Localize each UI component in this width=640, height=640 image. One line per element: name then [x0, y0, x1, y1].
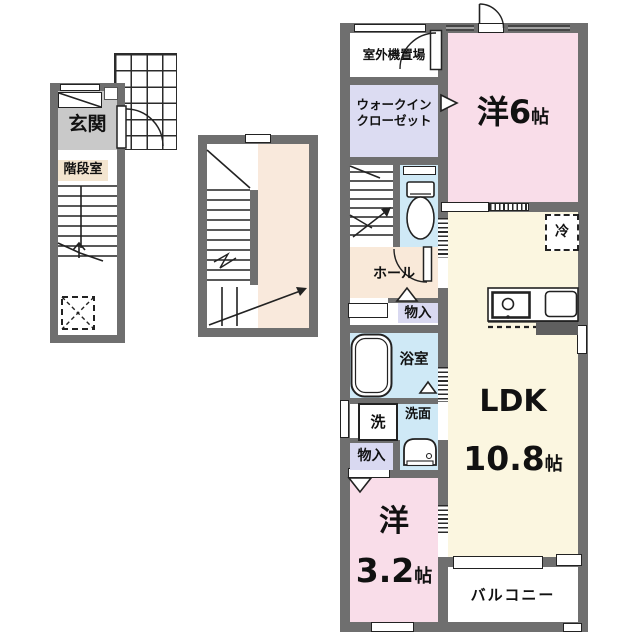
stairwell-label: 階段室 [58, 160, 108, 181]
bath-folddoor-marker [420, 382, 436, 393]
outdoor-unit-label: 室外機置場 [350, 47, 438, 63]
bath-label: 浴室 [390, 351, 438, 369]
entrance-label: 玄関 [58, 113, 117, 137]
bathtub-icon [352, 335, 392, 397]
shoe-cabinet-diagonal [59, 93, 101, 107]
wic-label: ウォークイン クローゼット [350, 95, 438, 131]
entrance-door [117, 106, 163, 148]
unit-entry-door [480, 4, 504, 28]
kitchen-counter-icon [488, 288, 578, 335]
bedroom32-name-label: 洋 [350, 502, 438, 542]
balcony-label: バルコニー [448, 585, 578, 605]
ldk-size-label: 10.8帖 [448, 438, 578, 480]
f1-under-stair-storage [62, 297, 94, 329]
toilet-icon [407, 182, 434, 239]
bedroom6-label: 洋6帖 [448, 92, 578, 142]
stairs-2f [207, 150, 303, 326]
washbasin-icon [404, 439, 436, 466]
floor-plan: 冷 洗 [0, 0, 640, 640]
unit-stairs [350, 166, 393, 237]
bedroom32-size-label: 3.2帖 [350, 550, 438, 592]
hall-label: ホール [350, 265, 438, 285]
washroom-label: 洗面 [398, 406, 438, 424]
storage2-label: 物入 [350, 443, 393, 470]
ldk-name-label: LDK [448, 384, 578, 420]
storage2-folddoor-marker [349, 478, 371, 492]
f1-stairs [58, 186, 117, 261]
hall-storage-folddoor-marker [397, 288, 417, 301]
hall-storage-label: 物入 [398, 303, 438, 323]
